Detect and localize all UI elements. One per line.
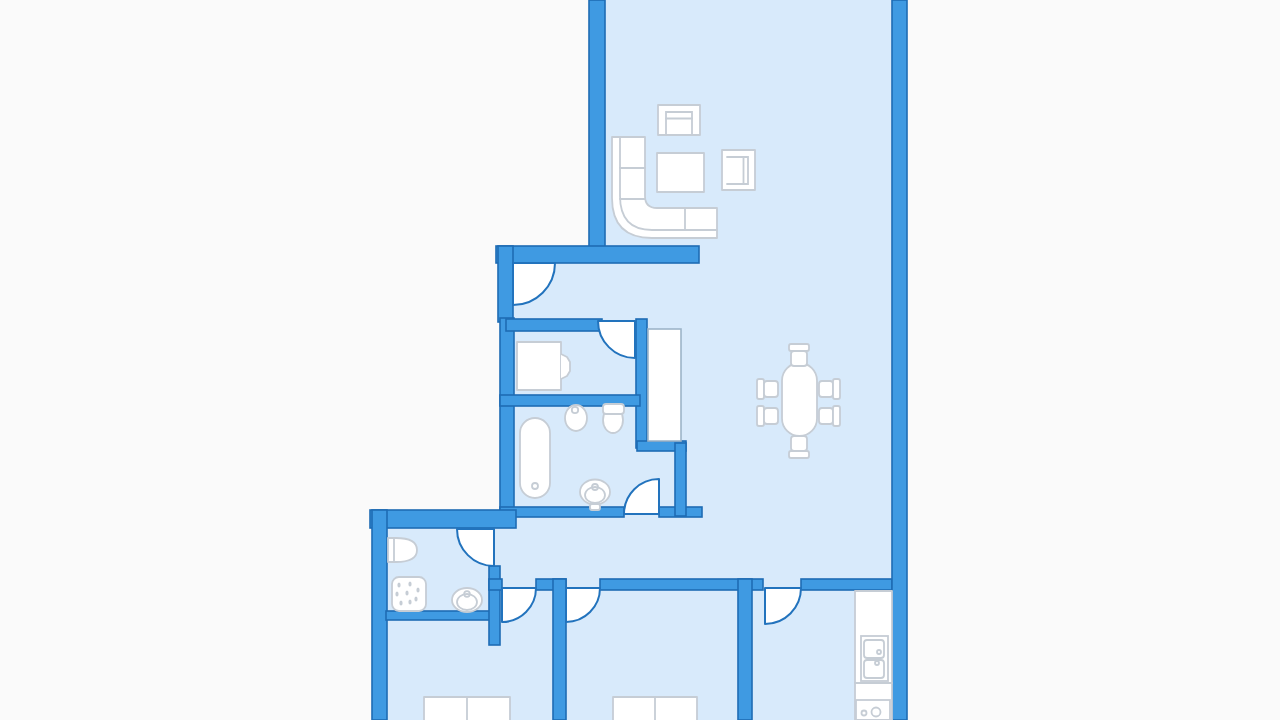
- coffee-table: [657, 153, 704, 192]
- shower: [392, 577, 426, 611]
- west-exterior-wall: [372, 510, 387, 720]
- armchair-side: [722, 150, 755, 190]
- bedroom-divider-wall: [553, 579, 566, 720]
- dining-chair-south: [789, 436, 809, 458]
- east-exterior-wall: [892, 0, 907, 720]
- dining-chair-west-2: [757, 406, 778, 426]
- closet-east-wall: [675, 443, 686, 516]
- dining-chair-west-1: [757, 379, 778, 399]
- floor-plan: [0, 0, 1280, 720]
- entry-west-wall: [498, 246, 513, 322]
- northwest-exterior-wall: [370, 510, 516, 528]
- shower-room-south-wall: [386, 611, 497, 620]
- shower-room-toilet: [452, 588, 482, 612]
- study-west-wall: [500, 318, 514, 512]
- closet-west-wall: [636, 319, 647, 448]
- bed-1: [424, 697, 510, 720]
- bed-2: [613, 697, 697, 720]
- living-room-west-wall: [589, 0, 605, 262]
- entry-north-wall: [496, 246, 699, 263]
- shower-room-washbasin: [388, 538, 417, 562]
- dining-table: [782, 363, 817, 436]
- bidet: [565, 405, 587, 431]
- kitchen-divider-wall: [738, 579, 752, 720]
- study-north-wall: [506, 319, 602, 331]
- south-corridor-wall-a: [489, 579, 502, 590]
- bathtub: [520, 418, 550, 498]
- shower-room-east-wall: [489, 566, 500, 645]
- dining-chair-east-2: [819, 406, 840, 426]
- armchair-top: [658, 105, 700, 135]
- floor-plan-svg: [0, 0, 1280, 720]
- dining-chair-east-1: [819, 379, 840, 399]
- built-in-closet: [648, 329, 681, 441]
- south-corridor-wall-d: [801, 579, 892, 590]
- dining-chair-north: [789, 344, 809, 366]
- bathroom-south-wall-west: [500, 507, 624, 517]
- toilet: [603, 404, 624, 433]
